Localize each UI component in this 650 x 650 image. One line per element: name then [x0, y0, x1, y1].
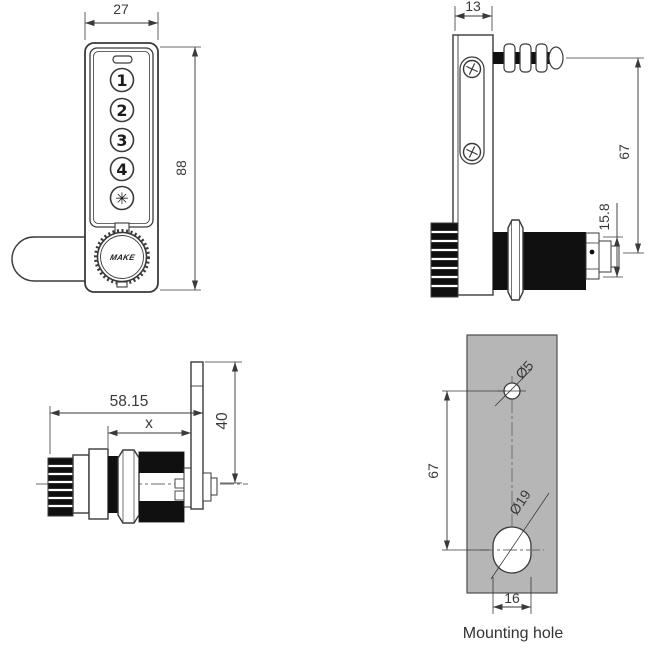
cam-lever — [191, 362, 203, 509]
barrel-grip-label: x — [145, 415, 153, 432]
side-view: 13 67 15.8 — [431, 0, 644, 300]
button-3-label: 3 — [116, 131, 127, 150]
technical-drawing-page: 1 2 3 4 ✳ MAKE 27 88 — [0, 0, 650, 650]
hole-spacing-label: 67 — [425, 463, 441, 479]
button-star-label: ✳ — [115, 189, 128, 208]
front-height-dimension: 88 — [160, 47, 201, 290]
cam-end-fixing — [203, 473, 217, 501]
barrel-grip-dimension: x — [108, 415, 191, 448]
cam-shaft-step — [184, 468, 191, 507]
side-depth-label: 13 — [465, 0, 481, 14]
cam-length-dimension: 40 — [205, 362, 242, 483]
barrel-view: 58.15 x 40 — [36, 362, 248, 523]
barrel-hex-nut — [118, 450, 139, 523]
side-knob — [431, 223, 458, 297]
barrel-thread-section — [139, 452, 184, 522]
barrel-length-label: 58.15 — [110, 393, 149, 410]
front-view: 1 2 3 4 ✳ MAKE 27 88 — [12, 1, 201, 292]
side-barrel — [493, 232, 586, 290]
side-axis-spacing-label: 67 — [616, 144, 632, 160]
knob-bottom-tab — [117, 282, 127, 287]
front-width-label: 27 — [113, 1, 129, 17]
mounting-caption: Mounting hole — [463, 625, 564, 642]
side-rear-cam-fixing — [586, 233, 619, 279]
screw-bottom — [464, 144, 481, 161]
side-hex-nut — [508, 220, 523, 300]
barrel-knob — [48, 458, 73, 516]
mounting-view: Ø5 Ø19 67 16 Mounting hole — [425, 335, 563, 642]
knob-logo: MAKE — [109, 253, 136, 262]
barrel-flange — [89, 449, 108, 519]
side-rear-height-label: 15.8 — [596, 203, 612, 230]
hole-width-label: 16 — [504, 590, 520, 606]
barrel-length-dimension: 58.15 — [50, 393, 203, 454]
front-width-dimension: 27 — [85, 1, 158, 40]
barrel-thread-neck — [108, 456, 118, 513]
cam-length-label: 40 — [214, 412, 231, 430]
barrel-body — [73, 455, 89, 513]
spindle-post — [493, 44, 563, 72]
button-4-label: 4 — [116, 160, 127, 179]
cam-tab — [12, 237, 95, 281]
screw-top — [464, 61, 481, 78]
lock-drawing-svg: 1 2 3 4 ✳ MAKE 27 88 — [0, 0, 650, 650]
button-1-label: 1 — [116, 71, 127, 90]
side-depth-dimension: 13 — [455, 0, 492, 31]
button-2-label: 2 — [116, 101, 127, 120]
led-indicator — [113, 56, 132, 63]
front-height-label: 88 — [173, 160, 189, 176]
